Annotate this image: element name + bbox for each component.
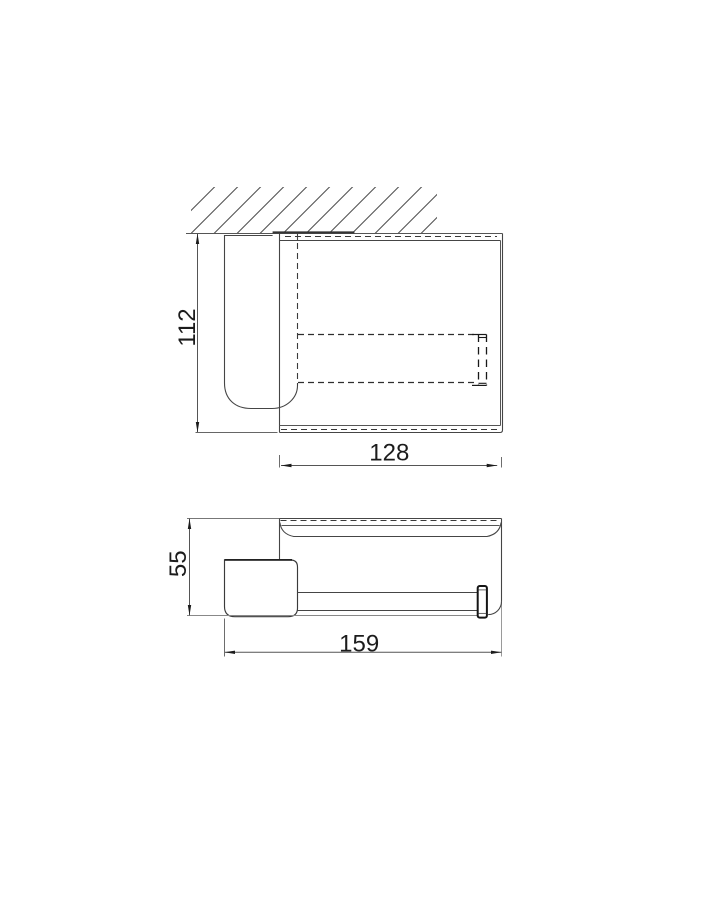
- svg-text:159: 159: [339, 630, 379, 657]
- svg-text:55: 55: [165, 550, 192, 577]
- svg-text:112: 112: [174, 308, 201, 346]
- svg-text:128: 128: [369, 439, 409, 466]
